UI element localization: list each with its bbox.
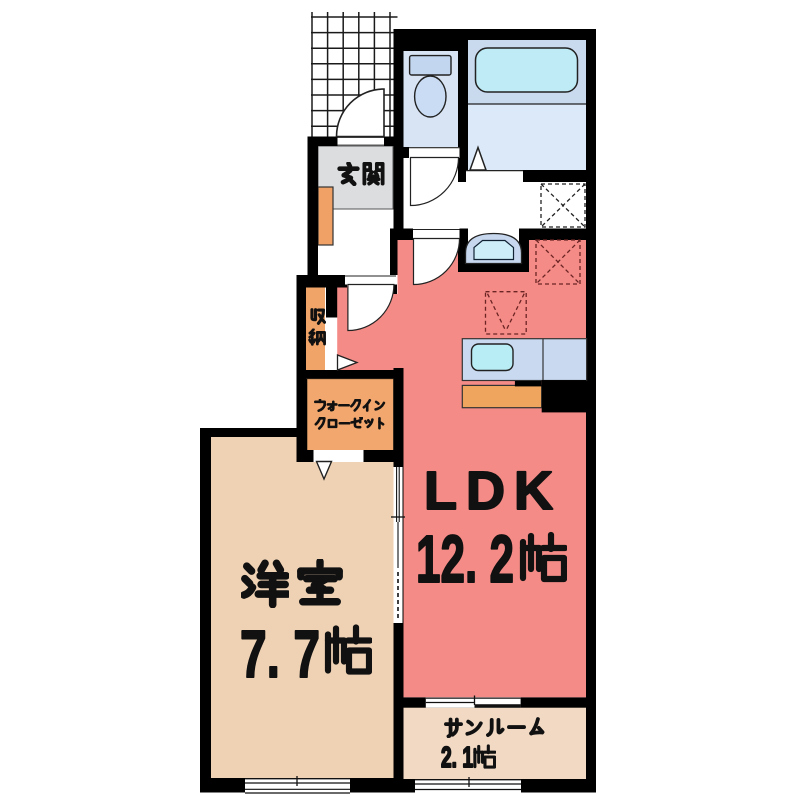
svg-text:LDK: LDK [424, 461, 562, 521]
svg-text:12. 2: 12. 2 [416, 522, 514, 597]
svg-text:2. 1: 2. 1 [441, 742, 473, 774]
svg-text:7. 7: 7. 7 [240, 617, 320, 692]
